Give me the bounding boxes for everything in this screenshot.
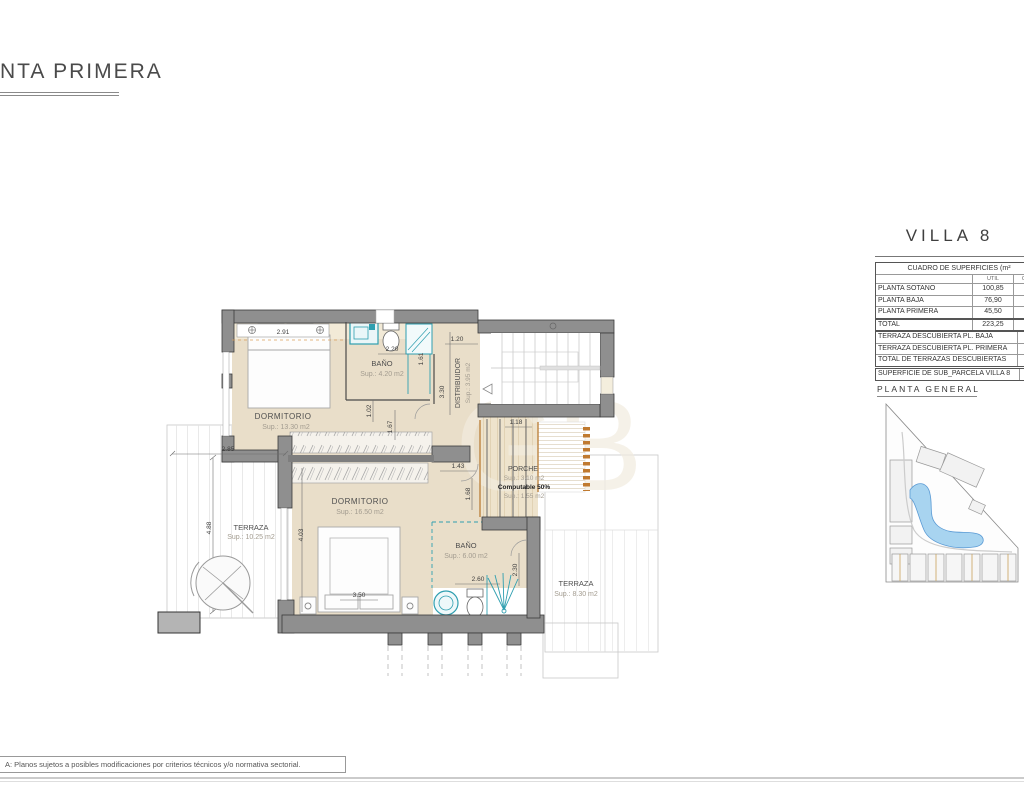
dim-285: 2.85 — [222, 446, 235, 453]
room-label-bano-1: BAÑO — [371, 359, 392, 368]
blueprint-sheet: { "header": { "title": "NTA PRIMERA" }, … — [0, 0, 1024, 800]
title-underline — [0, 92, 119, 93]
site-plan-title: PLANTA GENERAL — [877, 384, 980, 394]
table-row: TERRAZA DESCUBIERTA PL. PRIMERA — [876, 343, 1024, 355]
col-util: UTIL — [972, 275, 1013, 283]
dim-168: 1.68 — [465, 487, 472, 500]
dim-488: 4.88 — [206, 521, 213, 534]
room-sup-porche: Sup.: 3.10 m2 — [504, 475, 545, 482]
dim-118: 1.18 — [510, 419, 523, 426]
room-sup-dormitorio-2: Sup.: 16.50 m2 — [336, 509, 384, 516]
villa-title: VILLA 8 — [875, 226, 1024, 246]
footer-rule-2 — [0, 781, 1024, 782]
site-plan-underline — [877, 396, 977, 397]
dim-102: 1.02 — [366, 404, 373, 417]
table-row: SUPERFICIE DE SUB_PARCELA VILLA 8 2 — [876, 369, 1024, 380]
terraces-table: TERRAZA DESCUBIERTA PL. BAJA 1 TERRAZA D… — [875, 331, 1024, 367]
room-label-terraza-left: TERRAZA — [233, 523, 268, 532]
site-villas-row — [892, 554, 1016, 581]
dim-350: 3.50 — [353, 592, 366, 599]
table-row-total: TOTAL 223,25 2 — [876, 318, 1024, 331]
dim-403: 4.03 — [298, 528, 305, 541]
dim-167: 1.67 — [387, 420, 394, 433]
dim-143: 1.43 — [452, 463, 465, 470]
room-label-porche: PORCHE — [508, 466, 538, 473]
room-sup-terraza-left: Sup.: 10.25 m2 — [227, 534, 275, 541]
parcel-table: SUPERFICIE DE SUB_PARCELA VILLA 8 2 — [875, 368, 1024, 381]
stairs — [483, 323, 600, 404]
footer-note: A: Planos sujetos a posibles modificacio… — [0, 756, 346, 773]
footer-rule — [0, 777, 1024, 779]
room-sup-bano-2: Sup.: 6.00 m2 — [444, 553, 488, 560]
room-sup-bano-1: Sup.: 4.20 m2 — [360, 371, 404, 378]
dim-230: 2.30 — [512, 563, 519, 576]
room-label-distribuidor: DISTRIBUIDOR — [455, 358, 462, 408]
room-computable-porche: Computable 50% — [498, 484, 551, 491]
dim-330: 3.30 — [439, 385, 446, 398]
room-label-dormitorio-1: DORMITORIO — [255, 412, 312, 421]
table-row: PLANTA SOTANO 100,85 1 — [876, 283, 1024, 295]
surfaces-table-subheader: UTIL CON — [876, 274, 1024, 283]
room-sup-distribuidor: Sup.: 3.95 m2 — [465, 362, 472, 403]
room-label-dormitorio-2: DORMITORIO — [332, 497, 389, 506]
room-label-bano-2: BAÑO — [455, 541, 476, 550]
villa-underline — [875, 256, 1024, 257]
room-sup-dormitorio-1: Sup.: 13.30 m2 — [262, 424, 310, 431]
site-plan — [872, 402, 1024, 602]
room-label-terraza-right: TERRAZA — [558, 579, 593, 588]
table-row: PLANTA PRIMERA 45,50 — [876, 306, 1024, 318]
dim-120: 1.20 — [451, 336, 464, 343]
pergola-slats — [538, 422, 590, 492]
table-row: TERRAZA DESCUBIERTA PL. BAJA 1 — [876, 332, 1024, 343]
terrace-pillar — [158, 612, 200, 633]
bed-lower — [300, 527, 418, 614]
surfaces-table: CUADRO DE SUPERFICIES (m² UTIL CON PLANT… — [875, 262, 1024, 331]
title-underline-2 — [0, 95, 119, 96]
col-con: CON — [1013, 275, 1024, 283]
table-row: PLANTA BAJA 76,90 — [876, 295, 1024, 307]
room-sup2-porche: Sup.: 1.55 m2 — [504, 493, 545, 500]
dim-161: 1.61 — [418, 352, 425, 365]
page-title: NTA PRIMERA — [0, 60, 163, 84]
dim-260: 2.60 — [472, 576, 485, 583]
dim-220: 2.20 — [386, 346, 399, 353]
dim-291: 2.91 — [277, 329, 290, 336]
room-sup-terraza-right: Sup.: 8.30 m2 — [554, 591, 598, 598]
table-row: TOTAL DE TERRAZAS DESCUBIERTAS — [876, 354, 1024, 366]
surfaces-table-title: CUADRO DE SUPERFICIES (m² — [876, 263, 1024, 274]
floor-plan: GB — [140, 280, 680, 720]
